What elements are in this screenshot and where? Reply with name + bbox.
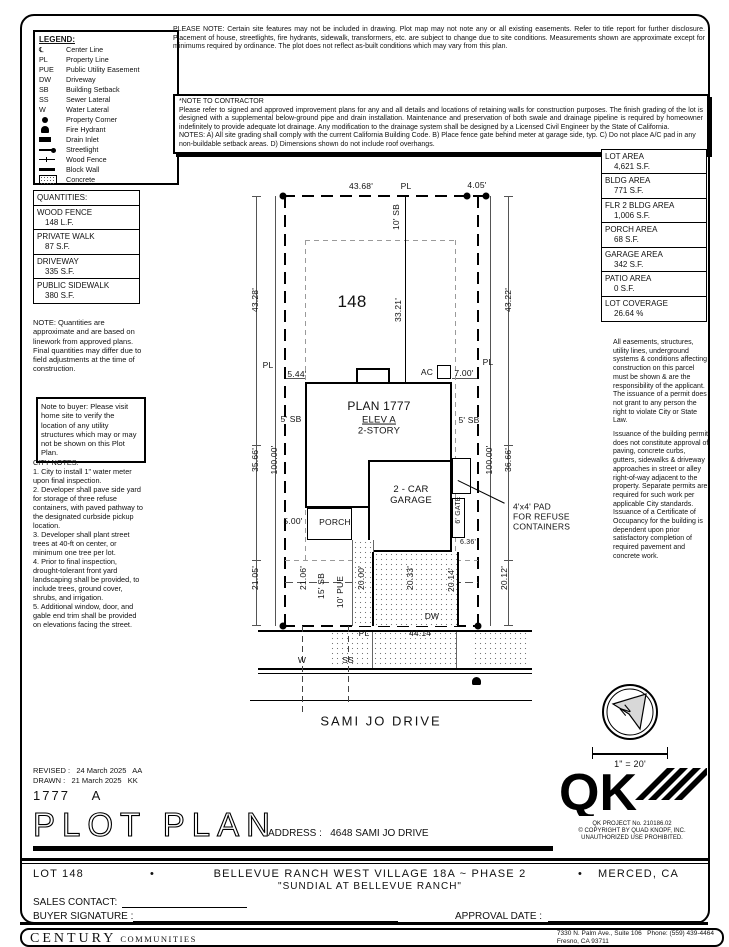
address-line: ADDRESS : 4648 SAMI JO DRIVE [268, 828, 429, 839]
address-street: 7330 N. Palm Ave., Suite 106 [557, 930, 642, 937]
sheet-title: PLOT PLAN [31, 802, 311, 846]
builder-address: 7330 N. Palm Ave., Suite 106 Phone: (559… [557, 930, 714, 945]
house-dim-line [285, 378, 305, 379]
public-utility-easement-symbol: PUE [39, 65, 66, 74]
area-box: GARAGE AREA342 S.F. [601, 247, 707, 273]
legend-label: Property Corner [66, 115, 161, 124]
sales-contact-label: SALES CONTACT: [33, 897, 117, 908]
sidewalk-concrete [473, 631, 530, 667]
legend-label: Center Line [66, 45, 161, 54]
legend-row: WWater Lateral [39, 105, 173, 114]
area-box: BLDG AREA771 S.F. [601, 173, 707, 199]
scale-bar-tick [667, 747, 668, 759]
city-notes-title: CITY NOTES: [33, 458, 146, 467]
quantities-note: NOTE: Quantities are approximate and are… [33, 318, 145, 374]
legend-label: Streetlight [66, 145, 161, 154]
wall-icon [39, 165, 66, 174]
legend-rows: ℄Center LinePLProperty LinePUEPublic Uti… [39, 45, 173, 184]
brand-sub: COMMUNITIES [120, 934, 196, 944]
sheet-title-text: PLOT PLAN [33, 806, 277, 843]
legend-row: Fire Hydrant [39, 125, 173, 134]
dim-line [275, 196, 276, 626]
legend-label: Driveway [66, 75, 161, 84]
qk-copyright: © COPYRIGHT BY QUAD KNOPF, INC. [556, 828, 708, 835]
property-line-top [283, 195, 488, 197]
hydrant-icon [41, 126, 49, 133]
please-note-text: PLEASE NOTE: Certain site features may n… [173, 26, 705, 52]
legend-row: DWDriveway [39, 75, 173, 84]
area-name: GARAGE AREA [605, 250, 703, 260]
area-value: 771 S.F. [605, 186, 703, 196]
city-note-item: 5. Additional window, door, and gable en… [33, 602, 146, 629]
approval-date-label: APPROVAL DATE : [455, 911, 542, 922]
dot-icon [39, 115, 66, 124]
property-corner-dot [475, 623, 482, 630]
north-arrow-compass: N [600, 682, 660, 742]
legend-row: PLProperty Line [39, 55, 173, 64]
sales-contact-line [122, 907, 247, 908]
legend-label: Building Setback [66, 85, 161, 94]
fence-icon [39, 156, 55, 163]
hydrant-icon [39, 125, 66, 134]
note-to-contractor-box: *NOTE TO CONTRACTOR Please refer to sign… [173, 94, 709, 154]
lot-label: LOT 148 [33, 868, 84, 880]
right-legal-text: All easements, structures, utility lines… [613, 339, 710, 562]
front-walk-concrete [352, 540, 374, 626]
property-line-symbol: PL [39, 55, 66, 64]
driveway-concrete [372, 552, 459, 626]
quantity-value: 148 L.F. [37, 218, 136, 228]
easements-note: All easements, structures, utility lines… [613, 339, 710, 426]
scale-bar-tick [592, 747, 593, 759]
driveway-symbol: DW [39, 75, 66, 84]
city-notes: CITY NOTES: 1. City to install 1" water … [33, 458, 146, 629]
area-value: 342 S.F. [605, 260, 703, 270]
legend-label: Sewer Lateral [66, 95, 161, 104]
property-line-left [284, 196, 286, 626]
quantity-value: 380 S.F. [37, 291, 136, 301]
city-note-item: 4. Prior to final inspection, drought-to… [33, 557, 146, 602]
wall-icon [39, 168, 55, 172]
fire-hydrant-icon [472, 677, 481, 685]
area-box: PORCH AREA68 S.F. [601, 222, 707, 248]
area-value: 4,621 S.F. [605, 162, 703, 172]
drawn-line: DRAWN : 21 March 2025 KK [33, 776, 138, 785]
dim-tick [504, 560, 513, 561]
buyer-signature-label: BUYER SIGNATURE : [33, 911, 133, 922]
porch-outline [307, 508, 352, 540]
legend-label: Property Line [66, 55, 161, 64]
legend-box: LEGEND: ℄Center LinePLProperty LinePUEPu… [33, 30, 179, 185]
qk-copyright2: UNAUTHORIZED USE PROHIBITED. [556, 835, 708, 842]
quantity-name: DRIVEWAY [37, 257, 136, 267]
revised-line: REVISED : 24 March 2025 AA [33, 766, 142, 775]
contractor-body: Please refer to signed and approved impr… [179, 107, 703, 133]
dim-line [256, 196, 257, 626]
address-city: Fresno, CA 93711 [557, 938, 714, 946]
streetlight-icon [39, 146, 55, 154]
separator-thin [20, 863, 708, 864]
area-box: LOT COVERAGE26.64 % [601, 296, 707, 322]
qk-logo-text: QK [559, 764, 637, 816]
property-corner-dot [483, 193, 490, 200]
area-name: LOT AREA [605, 152, 703, 162]
quantity-value: 87 S.F. [37, 242, 136, 252]
legend-title: LEGEND: [39, 35, 173, 44]
legend-row: Block Wall [39, 165, 173, 174]
qk-logo: QK [557, 764, 707, 816]
city-note-item: 1. City to install 1" water meter upon f… [33, 467, 146, 485]
buyer-note-box: Note to buyer: Please visit home site to… [36, 397, 146, 463]
sb-dim-line [405, 196, 406, 240]
dim-tick [504, 445, 513, 446]
dim-line [490, 196, 491, 626]
sidewalk-concrete [330, 631, 372, 667]
quantity-name: PUBLIC SIDEWALK [37, 281, 136, 291]
concrete-icon [39, 175, 66, 184]
legend-label: Drain Inlet [66, 135, 161, 144]
legend-row: SBBuilding Setback [39, 85, 173, 94]
area-name: LOT COVERAGE [605, 299, 703, 309]
gate-outline [452, 498, 465, 538]
sidewalk-back-line [258, 630, 532, 632]
dim-tick [504, 196, 513, 197]
city-label: MERCED, CA [598, 868, 679, 880]
contractor-notes: NOTES: A) All site grading shall comply … [179, 132, 703, 149]
legend-row: ℄Center Line [39, 45, 173, 54]
garage-outline [368, 460, 452, 552]
quantity-value: 335 S.F. [37, 267, 136, 277]
legend-label: Public Utility Easement [66, 65, 161, 74]
legend-label: Water Lateral [66, 105, 161, 114]
scale-bar [592, 753, 668, 755]
address-phone: Phone: (559) 439-4464 [647, 930, 714, 937]
legend-row: PUEPublic Utility Easement [39, 65, 173, 74]
builder-brand: CENTURY COMMUNITIES [30, 929, 197, 947]
dim-tick [252, 196, 261, 197]
legend-row: Concrete [39, 175, 173, 184]
property-corner-dot [280, 193, 287, 200]
property-line-right [477, 196, 479, 626]
quantity-item: PUBLIC SIDEWALK380 S.F. [33, 278, 140, 304]
legend-row: Drain Inlet [39, 135, 173, 144]
water-lateral-line [302, 626, 303, 716]
area-name: PATIO AREA [605, 274, 703, 284]
sewer-lateral-line [348, 626, 349, 704]
refuse-pad-outline [452, 458, 471, 494]
drain-icon [39, 135, 66, 144]
dot-icon [42, 117, 48, 123]
curb-line [258, 668, 532, 670]
legend-label: Fire Hydrant [66, 125, 161, 134]
area-box: FLR 2 BLDG AREA1,006 S.F. [601, 198, 707, 224]
area-box: LOT AREA4,621 S.F. [601, 149, 707, 175]
bullet: • [150, 868, 154, 880]
area-name: BLDG AREA [605, 176, 703, 186]
area-box: PATIO AREA0 S.F. [601, 271, 707, 297]
dim-tick [252, 625, 261, 626]
streetlight-icon [39, 145, 66, 154]
footer-bar: CENTURY COMMUNITIES 7330 N. Palm Ave., S… [20, 928, 724, 947]
permit-note: Issuance of the building permit does not… [613, 431, 710, 562]
center-line-symbol: ℄ [39, 45, 66, 54]
gutter-line [258, 673, 532, 674]
city-note-item: 3. Developer shall plant street trees at… [33, 530, 146, 557]
dim-tick [504, 625, 513, 626]
concrete-icon [39, 175, 57, 185]
dim-tick [252, 445, 261, 446]
dim-line [508, 196, 509, 626]
setback-line-top [305, 240, 455, 241]
house-offset-dim-line [405, 240, 406, 382]
area-name: FLR 2 BLDG AREA [605, 201, 703, 211]
area-summary-column: LOT AREA4,621 S.F.BLDG AREA771 S.F.FLR 2… [601, 150, 707, 322]
legend-row: SSSewer Lateral [39, 95, 173, 104]
qk-logo-block: QK QK PROJECT No. 210186.02 © COPYRIGHT … [556, 764, 708, 843]
quantity-item: DRIVEWAY335 S.F. [33, 254, 140, 280]
quantities-box: QUANTITIES: WOOD FENCE148 L.F.PRIVATE WA… [33, 190, 140, 304]
contractor-title: *NOTE TO CONTRACTOR [179, 98, 703, 107]
sewer-lateral-symbol: SS [39, 95, 66, 104]
community-line: BELLEVUE RANCH WEST VILLAGE 18A ~ PHASE … [165, 868, 575, 880]
water-lateral-symbol: W [39, 105, 66, 114]
driveway-apron-concrete [372, 631, 457, 668]
area-name: PORCH AREA [605, 225, 703, 235]
legend-row: Wood Fence [39, 155, 173, 164]
area-value: 0 S.F. [605, 284, 703, 294]
quantity-name: WOOD FENCE [37, 208, 136, 218]
area-value: 26.64 % [605, 309, 703, 319]
area-value: 68 S.F. [605, 235, 703, 245]
legend-label: Block Wall [66, 165, 161, 174]
fence-icon [39, 155, 66, 164]
area-value: 1,006 S.F. [605, 211, 703, 221]
brand-main: CENTURY [30, 931, 116, 946]
quantity-item: PRIVATE WALK87 S.F. [33, 229, 140, 255]
quantity-item: WOOD FENCE148 L.F. [33, 205, 140, 231]
dim-tick [252, 560, 261, 561]
separator-thick [20, 858, 708, 861]
ac-pad-outline [437, 365, 451, 379]
title-underline-bar [33, 846, 553, 851]
subdivision-name: "SUNDIAL AT BELLEVUE RANCH" [165, 881, 575, 892]
property-corner-dot [280, 623, 287, 630]
quantity-name: PRIVATE WALK [37, 232, 136, 242]
city-note-item: 2. Developer shall pave side yard for st… [33, 485, 146, 530]
plan-number: 1777 A [33, 788, 102, 803]
building-setback-symbol: SB [39, 85, 66, 94]
street-edge-line [250, 700, 532, 701]
bullet: • [578, 868, 582, 880]
plot-plan-sheet: LEGEND: ℄Center LinePLProperty LinePUEPu… [0, 0, 729, 947]
drain-icon [39, 137, 51, 142]
separator-bottom-thick [20, 922, 708, 925]
legend-label: Wood Fence [66, 155, 161, 164]
legend-row: Property Corner [39, 115, 173, 124]
legend-label: Concrete [66, 175, 161, 184]
property-corner-dot [464, 193, 471, 200]
legend-row: Streetlight [39, 145, 173, 154]
